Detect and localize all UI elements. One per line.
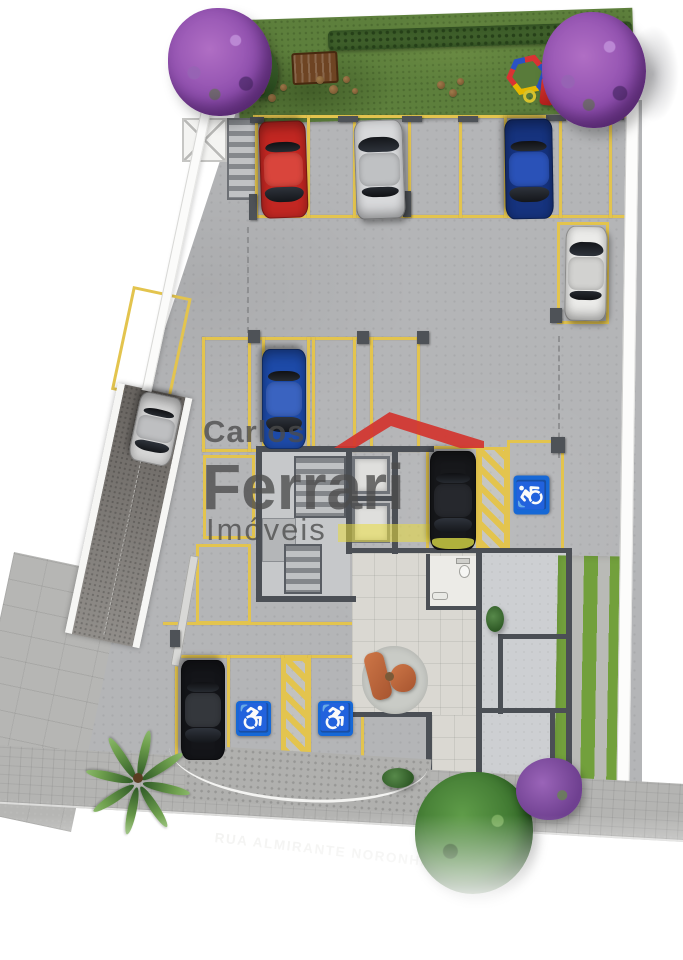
stair-flight-lower (284, 544, 322, 594)
parking-line (202, 337, 205, 452)
wall (256, 448, 262, 602)
parking-line (559, 115, 562, 218)
car-dark-blue-sedan (504, 119, 554, 220)
dirt-patch (343, 76, 350, 83)
wall (348, 496, 396, 501)
site-plan-canvas: RUA ALMIRANTE NORONHA Carlos Ferrari Imó… (0, 0, 683, 960)
rear-window (265, 142, 300, 153)
car-white-suv (564, 226, 608, 322)
car-roof (509, 152, 550, 187)
bathroom-wall (426, 554, 430, 610)
parking-line (163, 622, 371, 625)
purple-bush-street (516, 758, 582, 820)
parking-line (248, 337, 251, 452)
car-red-hatchback (258, 120, 308, 219)
purple-tree-right (542, 12, 646, 128)
parking-line (307, 337, 310, 452)
rear-window (570, 290, 601, 300)
column-pillar (249, 194, 257, 220)
parking-line (459, 115, 462, 218)
column-pillar (357, 331, 369, 344)
car-roof (434, 484, 473, 518)
rear-window (362, 187, 399, 198)
windshield (266, 417, 302, 432)
wall (498, 634, 503, 714)
palm-trunk-icon (133, 773, 143, 783)
dirt-patch (457, 78, 464, 85)
windshield (569, 242, 604, 257)
exterior-stairs (227, 118, 258, 200)
parking-line (175, 655, 370, 658)
lounge-armchair (390, 664, 416, 692)
wall (256, 596, 356, 602)
dirt-patch (268, 94, 276, 102)
car-roof (263, 152, 304, 186)
bathroom-floor (428, 556, 480, 608)
column-pillar (338, 116, 358, 122)
windshield (185, 728, 221, 743)
windshield (510, 187, 550, 203)
parking-line (312, 337, 315, 452)
column-pillar (550, 308, 562, 323)
parking-line (609, 115, 612, 218)
column-pillar (170, 630, 180, 647)
car-roof (358, 152, 400, 187)
dirt-patch (280, 84, 287, 91)
wall (566, 548, 572, 792)
windshield (358, 136, 399, 152)
column-pillar (417, 331, 429, 344)
drive-path-dashed-line (247, 227, 249, 333)
lobby-plant (486, 606, 504, 632)
handicap-sign: ♿ (514, 476, 550, 515)
dirt-patch (449, 89, 457, 97)
toilet-icon (456, 558, 470, 564)
handicap-sign: ♿ (236, 701, 271, 736)
sink-icon (432, 592, 448, 600)
car-black-car-yellow-front (430, 451, 476, 550)
no-parking-hatch (479, 447, 507, 551)
palm-tree (92, 730, 184, 826)
handicap-sign: ♿ (318, 701, 353, 736)
rear-window (511, 141, 547, 152)
car-roof (185, 693, 222, 727)
purple-tree-left (168, 8, 272, 116)
dirt-patch (316, 76, 324, 84)
rear-window (187, 682, 220, 692)
column-pillar (248, 330, 260, 343)
bathroom-wall (428, 606, 480, 610)
dirt-patch (437, 81, 445, 89)
windshield (265, 186, 304, 202)
parking-spot (203, 455, 255, 539)
dirt-patch (329, 85, 338, 94)
car-blue-convertible (262, 349, 306, 449)
car-black-suv (181, 660, 225, 760)
windshield (434, 518, 472, 533)
rear-window (268, 371, 301, 381)
wall (498, 634, 572, 639)
front-bumper (432, 538, 473, 549)
floor-highlight-band (338, 524, 436, 542)
dirt-patch (352, 88, 358, 94)
wall (480, 708, 572, 713)
rear-window (436, 473, 470, 483)
parking-spot (196, 544, 251, 624)
lounge-table (385, 672, 394, 681)
elevator-shaft-1 (352, 456, 390, 494)
column-pillar (551, 437, 565, 453)
column-pillar (458, 116, 478, 122)
wall (480, 548, 572, 553)
toilet-bowl-icon (459, 565, 470, 578)
stair-flight-upper (294, 456, 346, 518)
entry-bush (382, 768, 414, 788)
wall (476, 548, 482, 792)
column-pillar (402, 116, 422, 122)
car-roof (266, 382, 303, 416)
car-roof (568, 257, 604, 290)
car-silver-suv (353, 119, 405, 220)
bench (291, 51, 339, 85)
parking-line (253, 215, 633, 218)
parking-line (202, 337, 420, 340)
